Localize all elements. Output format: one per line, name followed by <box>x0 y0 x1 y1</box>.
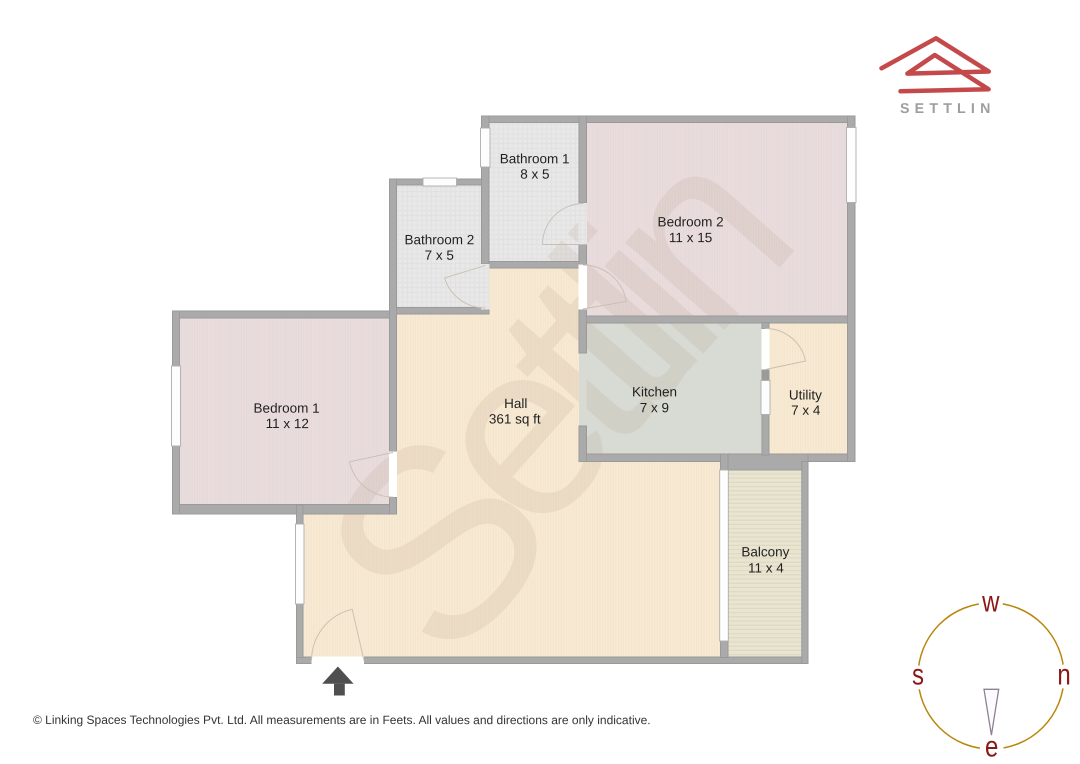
svg-text:11 x 12: 11 x 12 <box>266 416 309 431</box>
svg-text:Bathroom 1: Bathroom 1 <box>500 151 570 166</box>
svg-text:w: w <box>981 584 1000 618</box>
svg-text:Balcony: Balcony <box>741 544 789 559</box>
svg-text:s: s <box>912 657 924 691</box>
svg-text:Hall: Hall <box>504 396 527 411</box>
svg-text:7 x 4: 7 x 4 <box>791 403 821 418</box>
svg-text:361 sq ft: 361 sq ft <box>489 411 541 426</box>
svg-text:Kitchen: Kitchen <box>632 384 677 399</box>
svg-text:7 x 9: 7 x 9 <box>640 400 669 415</box>
svg-text:© Linking Spaces Technologies: © Linking Spaces Technologies Pvt. Ltd. … <box>33 713 651 727</box>
svg-text:Bedroom 2: Bedroom 2 <box>658 214 724 229</box>
svg-text:n: n <box>1057 657 1070 691</box>
svg-text:Bathroom 2: Bathroom 2 <box>404 232 474 247</box>
svg-text:7 x 5: 7 x 5 <box>425 248 454 263</box>
svg-text:SETTLIN: SETTLIN <box>900 101 996 117</box>
svg-text:8 x 5: 8 x 5 <box>520 167 549 182</box>
svg-text:Bedroom 1: Bedroom 1 <box>254 401 320 416</box>
svg-text:11 x 4: 11 x 4 <box>748 561 784 576</box>
svg-text:Utility: Utility <box>789 388 822 403</box>
svg-text:11 x 15: 11 x 15 <box>669 230 712 245</box>
